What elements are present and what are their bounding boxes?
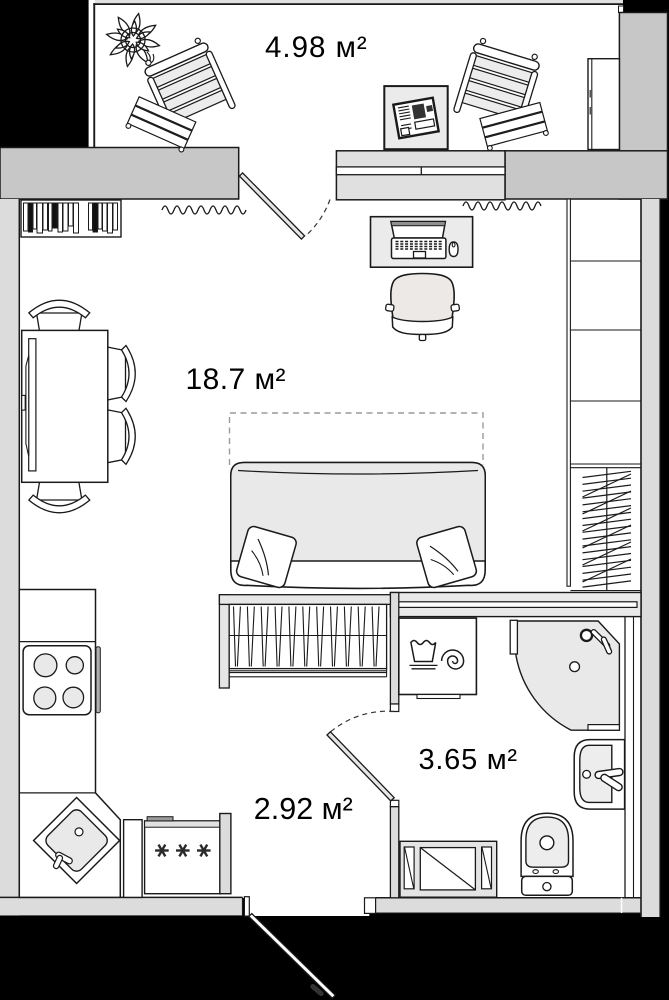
svg-text:4.98 м²: 4.98 м² — [265, 31, 368, 64]
svg-text:3.65 м²: 3.65 м² — [419, 744, 518, 776]
svg-text:2.92 м²: 2.92 м² — [254, 792, 353, 826]
svg-text:18.7 м²: 18.7 м² — [186, 363, 287, 396]
